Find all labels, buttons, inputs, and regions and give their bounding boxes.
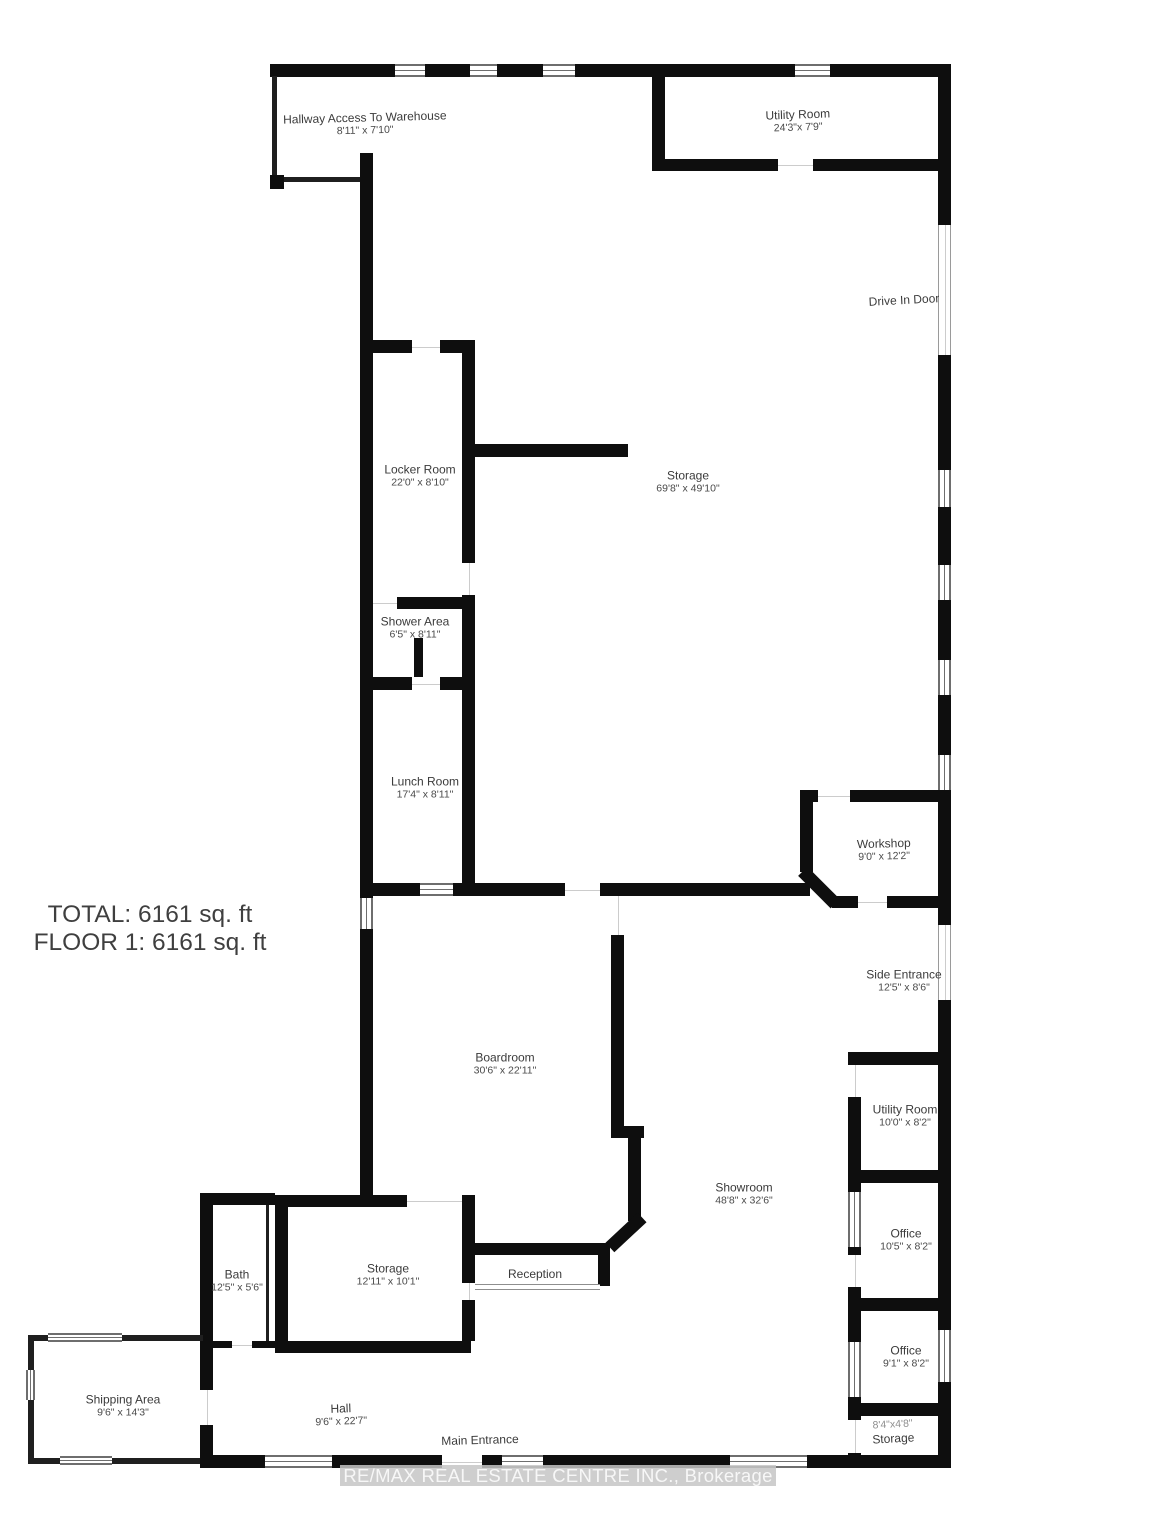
- wall-segment: [440, 677, 475, 690]
- window: [938, 660, 951, 695]
- room-name: Storage: [656, 469, 719, 483]
- wall-segment: [462, 1195, 475, 1283]
- room-label-utility-room-top: Utility Room 24'3"x 7'9": [765, 106, 831, 135]
- wall-segment: [275, 1341, 471, 1353]
- room-label-shower-area: Shower Area 6'5" x 8'11": [381, 615, 450, 642]
- wall-segment: [200, 1345, 213, 1390]
- room-label-locker-room: Locker Room 22'0" x 8'10": [384, 463, 455, 490]
- window: [848, 1192, 861, 1247]
- wall-segment: [360, 153, 373, 898]
- room-label-storage-small: 8'4"x4'8" Storage: [871, 1417, 914, 1446]
- wall-segment: [270, 64, 395, 77]
- door-opening: [848, 1420, 861, 1453]
- wall-segment: [848, 1298, 938, 1311]
- door-opening: [200, 1390, 213, 1425]
- wall-segment: [200, 1425, 213, 1467]
- wall-segment: [848, 1310, 861, 1342]
- door-opening: [412, 677, 440, 690]
- door-opening: [373, 597, 397, 609]
- room-name: Workshop: [857, 836, 911, 851]
- window: [848, 1342, 861, 1397]
- room-label-boardroom: Boardroom 30'6" x 22'11": [474, 1051, 537, 1078]
- room-dims: 9'6" x 22'7": [315, 1415, 367, 1430]
- room-label-hallway-access: Hallway Access To Warehouse 8'11" x 7'10…: [283, 108, 447, 139]
- room-dims: 12'5" x 5'6": [211, 1282, 263, 1295]
- wall-segment: [122, 1335, 203, 1341]
- floor-plan: Hallway Access To Warehouse 8'11" x 7'10…: [0, 0, 1152, 1536]
- door-opening: [412, 340, 440, 353]
- room-name: Office: [883, 1344, 929, 1358]
- room-name: Bath: [211, 1268, 263, 1282]
- window: [543, 64, 575, 77]
- door-opening: [611, 896, 624, 935]
- wall-segment: [600, 883, 810, 896]
- wall-segment: [848, 1052, 938, 1065]
- window: [60, 1456, 112, 1465]
- area-summary: TOTAL: 6161 sq. ft FLOOR 1: 6161 sq. ft: [34, 901, 267, 957]
- room-label-workshop: Workshop 9'0" x 12'2": [857, 836, 912, 864]
- wall-segment: [598, 1253, 610, 1286]
- wall-segment: [112, 1458, 203, 1464]
- window: [265, 1455, 332, 1468]
- door-opening: [778, 159, 813, 171]
- wall-segment: [800, 790, 813, 872]
- wall-segment: [462, 1300, 475, 1341]
- room-label-utility-room-right: Utility Room 10'0" x 8'2": [873, 1103, 938, 1130]
- room-dims: 48'8" x 32'6": [715, 1195, 773, 1208]
- door-opening: [858, 896, 887, 908]
- wall-segment: [360, 929, 373, 1201]
- room-name: Locker Room: [384, 463, 455, 477]
- brokerage-watermark: RE/MAX REAL ESTATE CENTRE INC., Brokerag…: [340, 1465, 776, 1486]
- room-dims: 9'6" x 14'3": [86, 1407, 161, 1420]
- door-opening: [407, 1195, 462, 1207]
- wall-segment: [284, 177, 364, 182]
- room-label-main-entrance: Main Entrance: [441, 1432, 519, 1448]
- wall-segment: [832, 896, 858, 908]
- room-name: Boardroom: [474, 1051, 537, 1065]
- window: [795, 64, 830, 77]
- room-label-storage-main: Storage 69'8" x 49'10": [656, 469, 719, 496]
- wall-segment: [628, 1126, 641, 1221]
- room-dims: 24'3"x 7'9": [766, 120, 831, 135]
- door-opening: [232, 1341, 252, 1348]
- wall-segment: [938, 507, 951, 565]
- room-label-bath: Bath 12'5" x 5'6": [211, 1268, 263, 1295]
- wall-segment: [848, 1453, 861, 1467]
- wall-segment: [938, 695, 951, 755]
- window: [420, 883, 453, 896]
- wall-segment: [938, 600, 951, 660]
- wall-segment: [465, 1243, 610, 1255]
- room-name: Office: [880, 1227, 932, 1241]
- room-label-hall: Hall 9'6" x 22'7": [315, 1401, 368, 1430]
- wall-segment: [497, 64, 543, 77]
- room-name: Shipping Area: [86, 1393, 161, 1407]
- room-dims: 10'0" x 8'2": [873, 1117, 938, 1130]
- wall-segment: [28, 1335, 34, 1370]
- wall-segment: [830, 64, 951, 77]
- wall-segment: [850, 790, 938, 802]
- wall-segment: [462, 340, 475, 563]
- wall-segment: [848, 1170, 938, 1183]
- wall-segment: [270, 175, 284, 189]
- wall-segment: [611, 935, 624, 1126]
- window: [395, 64, 425, 77]
- wall-segment: [848, 1403, 938, 1416]
- wall-segment: [275, 1195, 288, 1353]
- wall-segment: [28, 1458, 60, 1464]
- wall-segment: [575, 64, 795, 77]
- room-name: Showroom: [715, 1181, 773, 1195]
- room-name: Storage: [357, 1262, 420, 1276]
- door-opening: [848, 1255, 861, 1287]
- wall-segment: [848, 1183, 861, 1192]
- room-name: Shower Area: [381, 615, 450, 629]
- wall-segment: [848, 1410, 861, 1420]
- door-opening: [848, 1065, 861, 1097]
- door-opening: [462, 1283, 475, 1300]
- wall-segment: [366, 340, 412, 353]
- wall-segment: [266, 1205, 269, 1341]
- door-opening: [565, 883, 600, 896]
- room-label-reception: Reception: [508, 1267, 562, 1281]
- room-label-storage-mid: Storage 12'11" x 10'1": [357, 1262, 420, 1289]
- wall-segment: [462, 595, 475, 883]
- wall-segment: [652, 159, 778, 171]
- wall-segment: [366, 677, 412, 690]
- room-label-shipping-area: Shipping Area 9'6" x 14'3": [86, 1393, 161, 1420]
- wall-segment: [425, 64, 470, 77]
- window: [938, 470, 951, 507]
- wall-segment: [366, 883, 420, 896]
- window: [938, 565, 951, 600]
- room-dims: 12'5" x 8'6": [866, 982, 941, 995]
- room-name: Reception: [508, 1267, 562, 1281]
- wall-segment: [272, 76, 277, 176]
- room-dims: 10'5" x 8'2": [880, 1241, 932, 1254]
- room-label-lunch-room: Lunch Room 17'4" x 8'11": [391, 775, 459, 802]
- wall-segment: [848, 1247, 861, 1255]
- wall-segment: [28, 1400, 34, 1458]
- reception-counter: [470, 1284, 600, 1290]
- wall-segment: [938, 355, 951, 470]
- wall-segment: [453, 883, 565, 896]
- wall-segment: [397, 597, 475, 609]
- drive-in-door-opening: [938, 225, 951, 355]
- wall-segment: [887, 896, 938, 908]
- window: [26, 1370, 35, 1400]
- wall-segment: [275, 1195, 407, 1207]
- wall-segment: [807, 1455, 951, 1468]
- room-dims: 69'8" x 49'10": [656, 483, 719, 496]
- door-opening: [462, 563, 475, 595]
- room-dims: 9'0" x 12'2": [857, 850, 911, 864]
- wall-segment: [475, 444, 628, 457]
- room-dims: 22'0" x 8'10": [384, 477, 455, 490]
- room-name: Drive In Door: [868, 291, 939, 309]
- room-name: Main Entrance: [441, 1432, 519, 1448]
- wall-segment: [813, 159, 950, 171]
- room-name: Utility Room: [873, 1103, 938, 1117]
- room-name: Lunch Room: [391, 775, 459, 789]
- room-dims: 6'5" x 8'11": [381, 629, 450, 642]
- room-label-office-upper: Office 10'5" x 8'2": [880, 1227, 932, 1254]
- room-dims: 30'6" x 22'11": [474, 1065, 537, 1078]
- wall-segment: [252, 1341, 275, 1348]
- room-label-showroom: Showroom 48'8" x 32'6": [715, 1181, 773, 1208]
- wall-segment: [938, 790, 951, 925]
- wall-segment: [938, 1000, 951, 1330]
- wall-segment: [652, 64, 665, 171]
- total-area-line: TOTAL: 6161 sq. ft: [34, 901, 267, 929]
- door-opening: [818, 790, 850, 802]
- wall-segment: [848, 1052, 861, 1065]
- window: [470, 64, 497, 77]
- room-name: Side Entrance: [866, 968, 941, 982]
- room-label-office-lower: Office 9'1" x 8'2": [883, 1344, 929, 1371]
- window: [360, 898, 373, 929]
- window: [938, 755, 951, 790]
- window: [48, 1333, 122, 1342]
- window: [938, 1330, 951, 1382]
- room-dims: 12'11" x 10'1": [357, 1276, 420, 1289]
- room-dims: 17'4" x 8'11": [391, 789, 459, 802]
- room-label-drive-in-door: Drive In Door: [868, 291, 939, 309]
- room-name: Storage: [872, 1430, 915, 1446]
- floor1-area-line: FLOOR 1: 6161 sq. ft: [34, 929, 267, 957]
- room-dims: 9'1" x 8'2": [883, 1358, 929, 1371]
- wall-segment: [605, 1213, 646, 1253]
- wall-segment: [938, 64, 951, 225]
- room-label-side-entrance: Side Entrance 12'5" x 8'6": [866, 968, 941, 995]
